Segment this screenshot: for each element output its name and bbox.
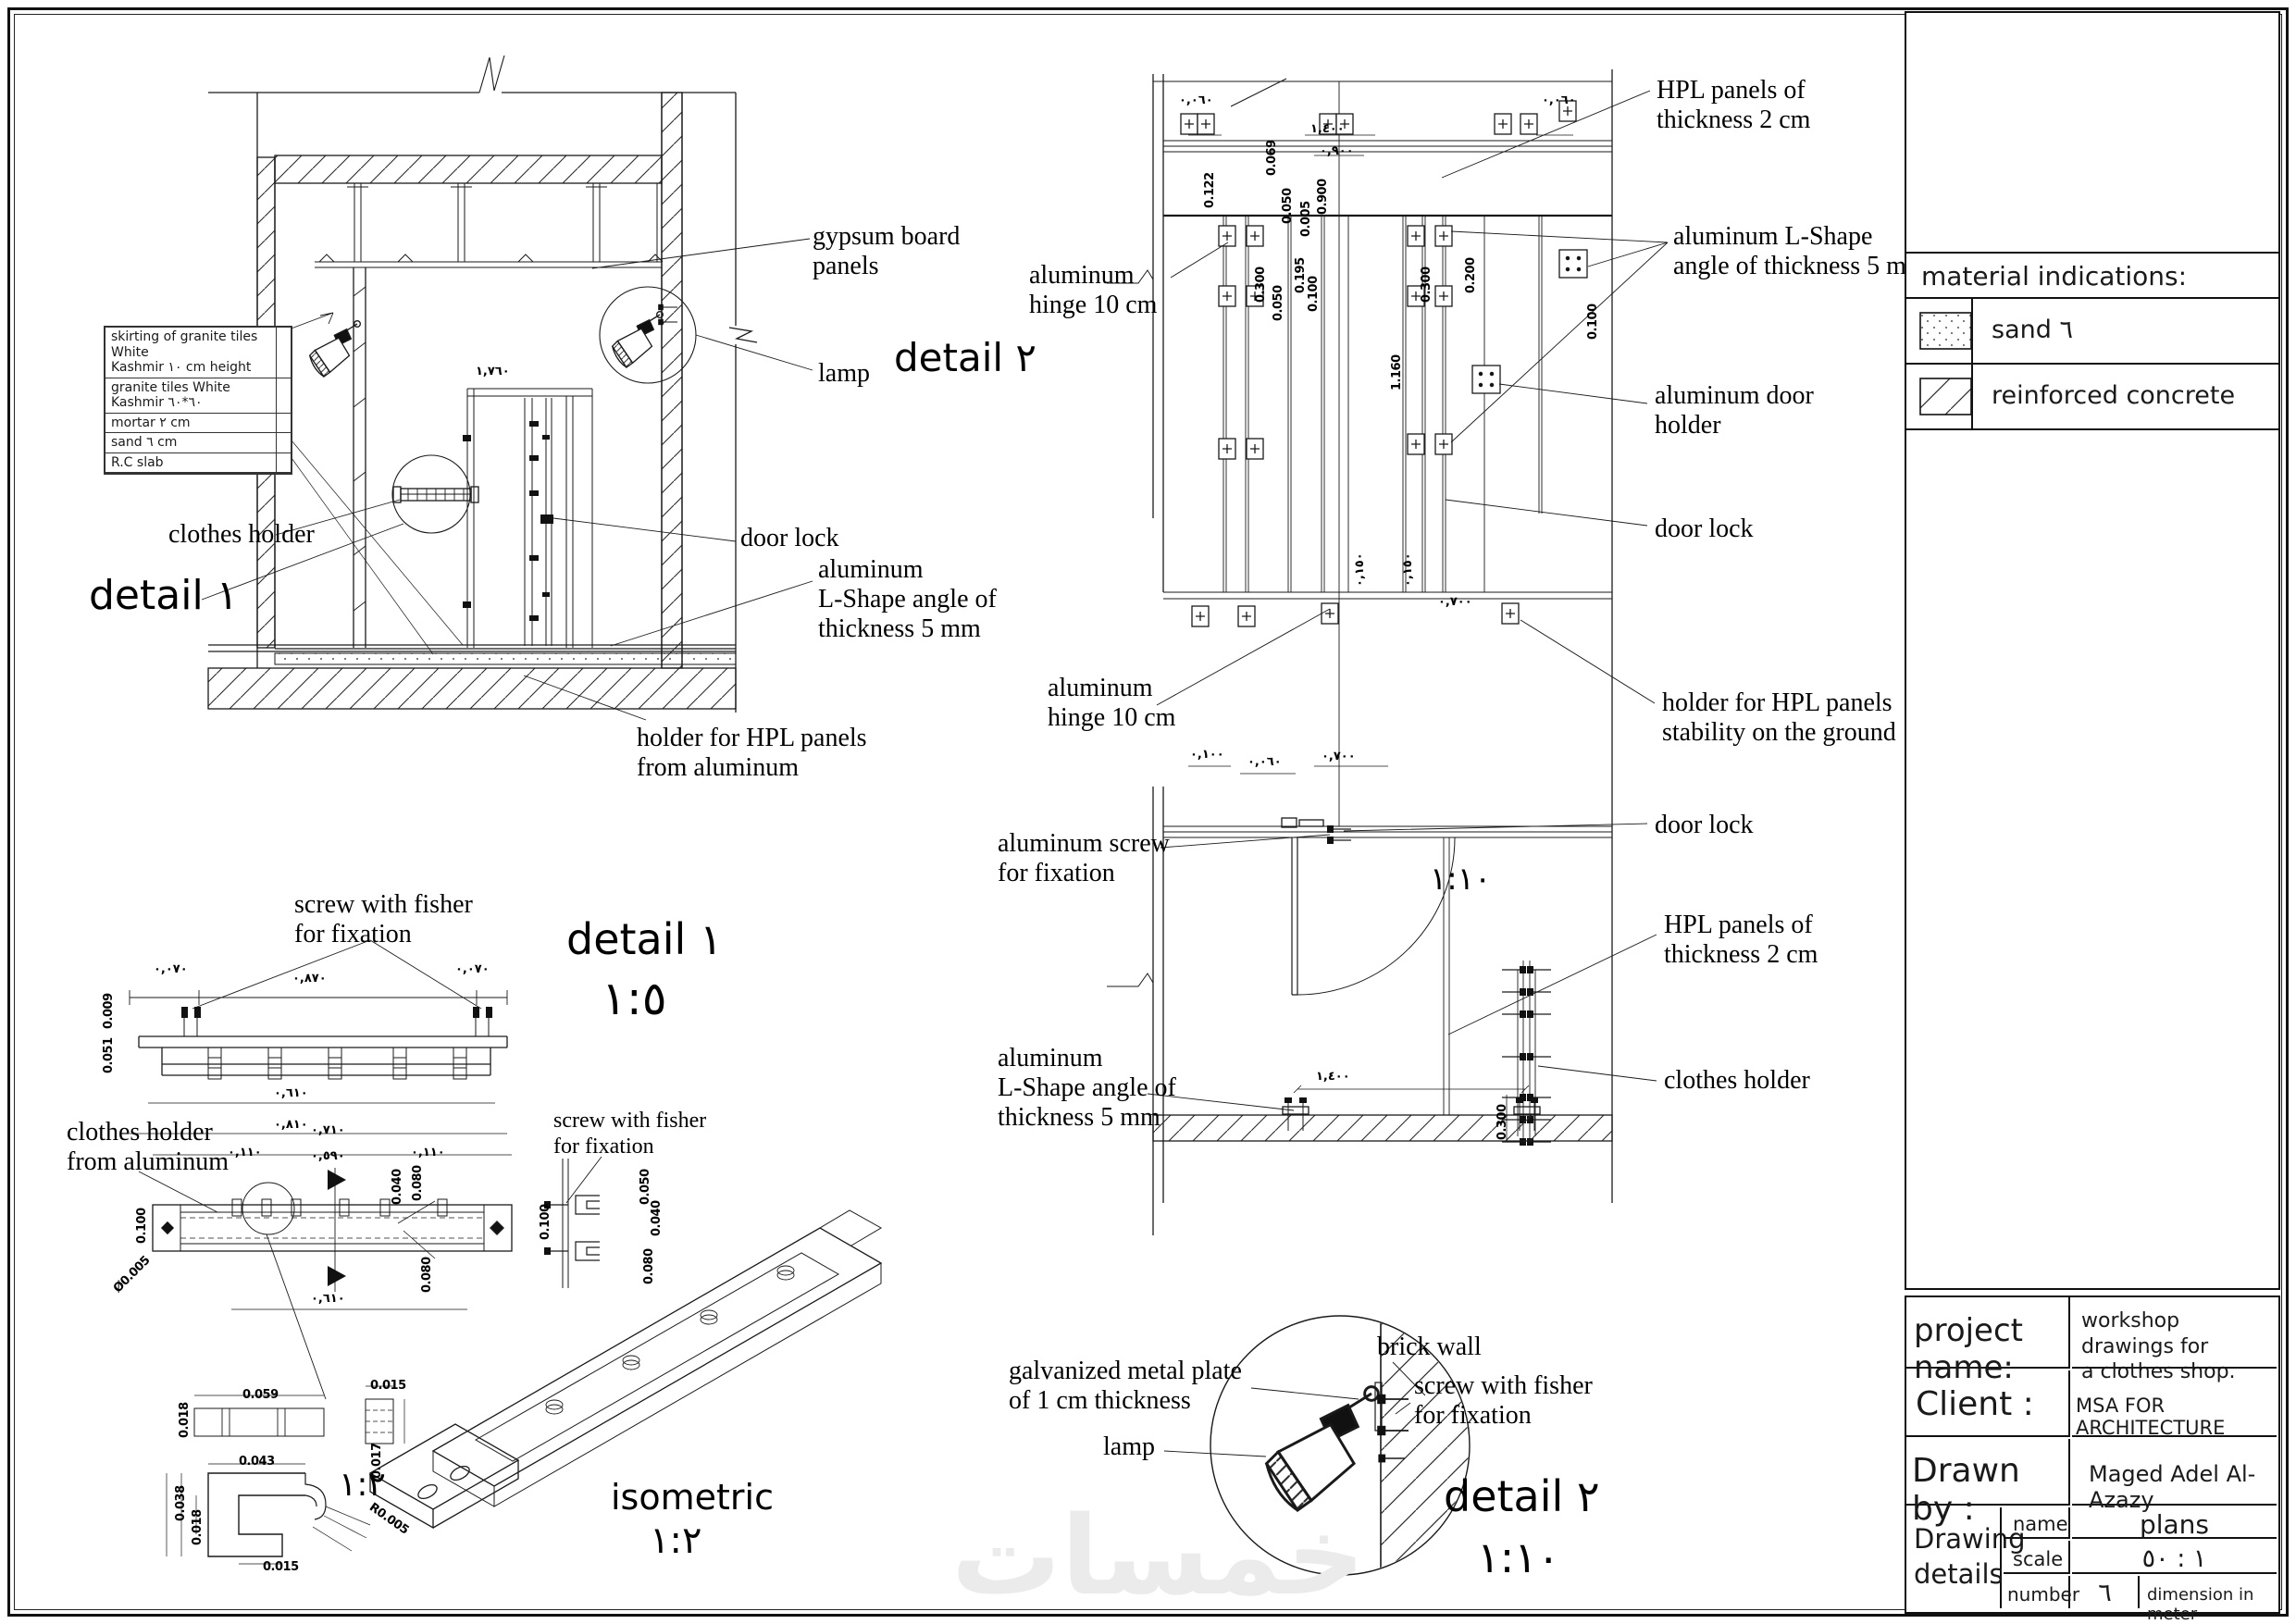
dim-label: 0.069 — [1265, 140, 1279, 176]
dim-label: 0.300 — [1496, 1104, 1509, 1140]
label-door-lock-bottom: door lock — [1655, 811, 1754, 840]
label-galvanized-plate: galvanized metal plate of 1 cm thickness — [1009, 1357, 1242, 1416]
drawing-sheet: خمسات skirting of granite tiles White Ka… — [0, 0, 2296, 1624]
project-name-value: workshop drawings for a clothes shop. — [2072, 1297, 2277, 1369]
dim-label: 0.100 — [135, 1208, 149, 1244]
material-label-sand: sand ٦ — [1992, 316, 2073, 344]
label-screw-fisher-top: screw with fisher for fixation — [294, 890, 473, 949]
project-name-label: project name: — [1906, 1297, 2070, 1369]
dim-label: 0.043 — [239, 1455, 275, 1469]
name-label: name — [2004, 1507, 2070, 1539]
drawn-by-label: Drawn by : — [1906, 1439, 2070, 1506]
dim-label: ٠,٥٩٠ — [311, 1149, 345, 1163]
dim-label: 0.050 — [1272, 285, 1285, 321]
dim-label: ٠,٠٧٠ — [154, 962, 188, 976]
sand-swatch-icon — [1919, 312, 1973, 351]
dim-label: 0.080 — [642, 1248, 656, 1284]
label-holder-stability: holder for HPL panels stability on the g… — [1662, 688, 1896, 748]
dim-label: 0.122 — [1203, 172, 1217, 208]
plan-top — [1107, 69, 1612, 1203]
dim-label: 0.900 — [1316, 179, 1330, 215]
layer-row: skirting of granite tiles White Kashmir … — [105, 328, 291, 378]
dim-label: 0.080 — [420, 1257, 434, 1293]
dim-label: 0.005 — [1299, 201, 1313, 237]
dim-label: ٠,١١٠ — [228, 1146, 262, 1159]
dim-label: ٠,٨٧٠ — [292, 972, 327, 986]
dim-label: ٠,٨١٠ — [274, 1118, 308, 1132]
dim-label: 0.195 — [1294, 257, 1308, 293]
label-lamp: lamp — [818, 359, 870, 389]
dim-label: 0.009 — [102, 993, 116, 1029]
holder-plan — [153, 1155, 512, 1309]
scale-label: scale — [2004, 1541, 2070, 1574]
dim-label: 0.017 — [370, 1443, 384, 1479]
label-lamp-d2: lamp — [1103, 1432, 1155, 1462]
drawing-details-label: Drawing details — [1906, 1507, 2002, 1608]
label-hinge-mid: aluminum hinge 10 cm — [1048, 674, 1175, 733]
label-screw-fisher-d2: screw with fisher for fixation — [1414, 1371, 1593, 1431]
callout-detail-1: detail ١ — [89, 572, 238, 619]
material-indications-panel: material indications: sand ٦ reinforced … — [1905, 252, 2280, 1290]
dim-label: ٠,٧٠٠ — [1438, 595, 1472, 609]
dim-label: 0.100 — [539, 1204, 552, 1240]
material-row-sand: sand ٦ — [1906, 299, 2278, 365]
dim-label: 0.300 — [1420, 267, 1433, 303]
plan-bottom — [1107, 766, 1612, 1235]
dim-label: 0.100 — [1307, 276, 1321, 312]
number-label: number — [2004, 1576, 2070, 1608]
number-value: ٦ — [2072, 1576, 2140, 1608]
dim-label: 0.300 — [1254, 267, 1268, 303]
label-clothes-holder-alum: clothes holder from aluminum — [67, 1118, 229, 1177]
label-hinge-top: aluminum hinge 10 cm — [1029, 261, 1157, 320]
dim-label: ١,٤٠٠ — [1316, 1070, 1350, 1084]
layer-row: sand ٦ cm — [105, 433, 291, 453]
dim-label: 0.015 — [370, 1379, 406, 1393]
dim-label: 0.015 — [263, 1560, 299, 1574]
dim-label: 0.018 — [178, 1402, 192, 1438]
material-row-divider — [1971, 299, 1973, 363]
dim-label: ٠,١١٠ — [411, 1146, 445, 1159]
dim-label: 1.160 — [1390, 354, 1404, 391]
client-label: Client : — [1906, 1370, 2070, 1437]
layer-row: R.C slab — [105, 453, 291, 474]
label-clothes-holder-right: clothes holder — [1664, 1066, 1810, 1096]
dim-label: 0.051 — [102, 1037, 116, 1073]
dim-label: ٠,٧٠٠ — [1322, 750, 1356, 763]
holder-side-section — [544, 1159, 600, 1288]
dim-label: ٠,٩٠٠ — [1320, 144, 1354, 158]
dim-label: 0.038 — [174, 1485, 188, 1521]
material-indications-title: material indications: — [1906, 254, 2278, 299]
dim-label: ٠,٦١٠ — [274, 1086, 308, 1100]
label-holder-hpl: holder for HPL panels from aluminum — [637, 724, 867, 783]
client-value: MSA FOR ARCHITECTURE — [2072, 1370, 2277, 1437]
isometric-scale: ١:٢ — [650, 1519, 701, 1562]
material-label-concrete: reinforced concrete — [1992, 381, 2235, 410]
dim-label: ٠,٠٦٠ — [1179, 93, 1213, 107]
label-lshape-angle: aluminum L-Shape angle of thickness 5 mm — [818, 555, 997, 645]
dim-label: 0.100 — [1586, 304, 1600, 340]
label-clothes-holder: clothes holder — [168, 520, 315, 550]
layer-row: mortar ٢ cm — [105, 414, 291, 434]
label-screw-fisher-mid: screw with fisher for fixation — [553, 1109, 706, 1159]
label-lshape-bottom: aluminum L-Shape angle of thickness 5 mm — [998, 1044, 1176, 1134]
floor-layers-table: skirting of granite tiles White Kashmir … — [104, 326, 292, 475]
dim-label: 0.059 — [242, 1388, 279, 1402]
detail1-title: detail ١ — [566, 914, 723, 964]
dim-label: 0.040 — [650, 1200, 664, 1236]
dim-label: ٠,١٠٠ — [1190, 748, 1224, 762]
dim-label: 0.018 — [191, 1509, 205, 1545]
dim-label: 0.050 — [1281, 188, 1295, 224]
dim-label: ٠,١٥٠ — [1353, 552, 1367, 587]
label-door-lock-right: door lock — [1655, 514, 1754, 544]
isometric-title: isometric — [611, 1477, 774, 1518]
dim-label: ٠,٧١٠ — [311, 1123, 345, 1137]
label-hpl-bottom: HPL panels of thickness 2 cm — [1664, 911, 1818, 970]
detail1-scale: ١:٥ — [602, 972, 667, 1025]
dim-label: ٠,١٥٠ — [1401, 552, 1415, 587]
plan-scale: ١:١٠ — [1430, 861, 1491, 898]
watermark: خمسات — [951, 1492, 1365, 1619]
label-screw-fixation: aluminum screw for fixation — [998, 829, 1170, 888]
dim-label: 0.080 — [411, 1165, 425, 1201]
dim-label: ٠,٠٧٠ — [455, 962, 490, 976]
scale-value: ١ : ٥٠ — [2072, 1541, 2277, 1574]
dim-label: ٠,٠٦٠ — [1542, 93, 1576, 107]
layer-row: granite tiles White Kashmir ٦٠*٦٠ — [105, 378, 291, 414]
concrete-swatch-icon — [1919, 378, 1973, 416]
material-row-divider — [1971, 365, 1973, 428]
material-row-concrete: reinforced concrete — [1906, 365, 2278, 430]
label-door-lock: door lock — [740, 524, 839, 553]
label-lshape-right: aluminum L-Shape angle of thickness 5 mm — [1673, 222, 1927, 281]
right-panel-top-box — [1905, 11, 2280, 255]
label-door-holder: aluminum door holder — [1655, 381, 1814, 440]
callout-detail-2: detail ٢ — [894, 335, 1036, 380]
dim-label: ٠,٠٦٠ — [1247, 755, 1282, 769]
dim-label: ١,٧٦٠ — [476, 365, 510, 378]
name-value: plans — [2072, 1507, 2277, 1539]
dim-label: 0.040 — [391, 1169, 404, 1205]
layers-table-divider — [276, 328, 277, 473]
dim-label: ٠,٦١٠ — [311, 1292, 345, 1306]
label-hpl-top: HPL panels of thickness 2 cm — [1657, 76, 1810, 135]
label-brick-wall: brick wall — [1377, 1333, 1482, 1362]
label-gypsum-board-panels: gypsum board panels — [813, 222, 960, 281]
dimension-note: dimension in meter — [2141, 1576, 2277, 1608]
dim-label: 0.200 — [1464, 257, 1478, 293]
detail2-title: detail ٢ — [1444, 1471, 1600, 1521]
detail2-scale: ١:١٠ — [1477, 1532, 1560, 1582]
drawn-by-value: Maged Adel Al-Azazy — [2072, 1439, 2277, 1506]
detail1-section — [130, 990, 507, 1134]
dim-label: ١,٤٠٠ — [1310, 122, 1345, 136]
title-block: project name: workshop drawings for a cl… — [1905, 1295, 2280, 1614]
